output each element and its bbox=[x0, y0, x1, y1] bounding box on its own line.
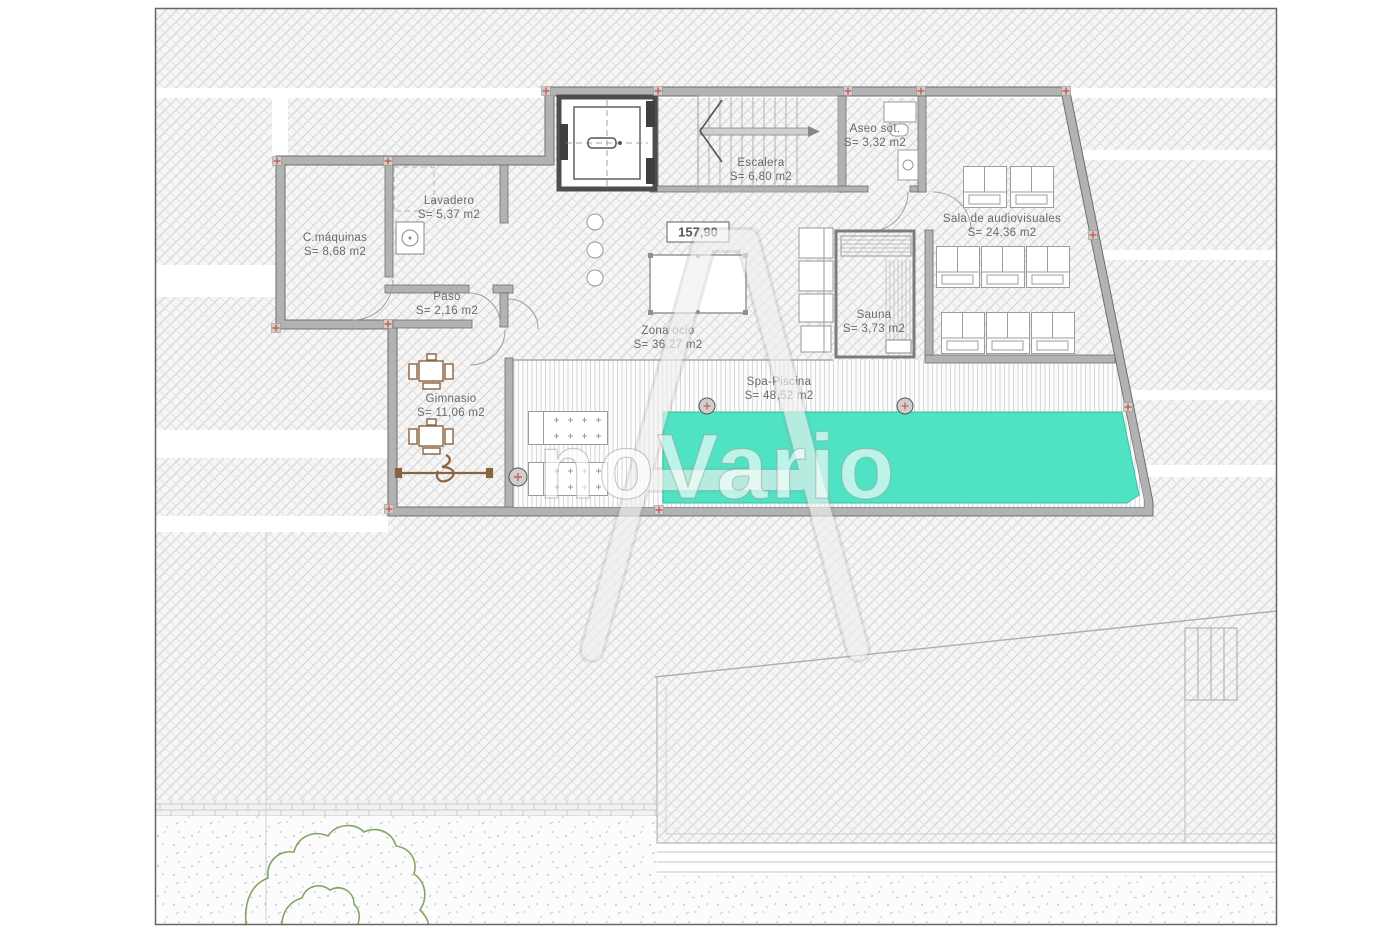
floor-plan-page: C.máquinas S= 8,68 m2 Lavadero S= 5,37 m… bbox=[0, 0, 1400, 933]
room-area: S= 8,68 m2 bbox=[304, 246, 366, 258]
garden-stipple-left bbox=[156, 816, 657, 925]
room-area: S= 24,36 m2 bbox=[968, 227, 1037, 239]
floor-plan-sheet: C.máquinas S= 8,68 m2 Lavadero S= 5,37 m… bbox=[0, 0, 1400, 933]
kerb-band bbox=[156, 800, 657, 816]
room-area: S= 3,73 m2 bbox=[843, 323, 905, 335]
room-name: C.máquinas bbox=[303, 232, 367, 244]
room-area: S= 2,16 m2 bbox=[416, 305, 478, 317]
elevator-icon bbox=[559, 97, 655, 189]
room-name: Paso bbox=[433, 291, 460, 303]
room-area: S= 5,37 m2 bbox=[418, 209, 480, 221]
room-name: Gimnasio bbox=[426, 393, 477, 405]
room-area: S= 6,80 m2 bbox=[730, 171, 792, 183]
room-name: Escalera bbox=[737, 157, 784, 169]
room-name: Lavadero bbox=[424, 195, 474, 207]
room-name: Sauna bbox=[857, 309, 892, 321]
watermark-text: noVario bbox=[539, 416, 897, 518]
room-area: S= 3,32 m2 bbox=[844, 137, 906, 149]
garden-stipple-right bbox=[657, 875, 1277, 925]
room-name: Sala de audiovisuales bbox=[943, 213, 1061, 225]
toilet-cistern bbox=[884, 102, 916, 122]
bar-cabinets bbox=[799, 228, 833, 352]
room-name: Aseo sót. bbox=[850, 123, 901, 135]
room-area: S= 11,06 m2 bbox=[417, 407, 485, 419]
